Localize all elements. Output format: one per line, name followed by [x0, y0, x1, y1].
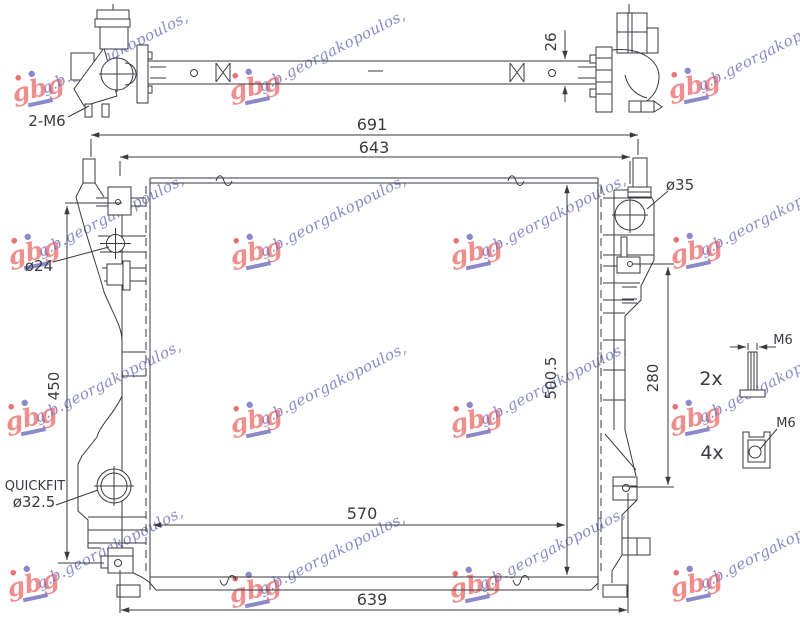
top-view-beam	[148, 61, 598, 84]
dim-bracket-span: 280	[630, 264, 674, 487]
upper-mount-bracket-right	[617, 257, 640, 273]
core-top-clip-right	[508, 176, 524, 186]
filler-pipe-front	[83, 159, 95, 183]
radiator-technical-drawing: gbg g.b.georgakopoulos, gbg g.b.georgako…	[0, 0, 800, 619]
top-view-filler-neck	[71, 4, 152, 117]
dim-upper-width-label: 643	[359, 138, 390, 157]
watermark-script-text: g.b.georgakopoulos,	[697, 503, 800, 593]
beam-clip-left	[216, 63, 230, 82]
dim-left-height-label: 450	[45, 372, 63, 401]
watermark-script-text: g.b.georgakopoulos,	[256, 6, 409, 96]
watermark-script-text: g.b.georgakopoulos,	[695, 5, 800, 95]
beam-clip-right	[510, 63, 524, 82]
dim-overall-width-label: 691	[357, 115, 388, 134]
dim-bracket-span-label: 280	[644, 364, 662, 393]
watermark: gbg g.b.georgakopoulos,	[447, 171, 630, 273]
inlet-diameter-label: ø24	[25, 257, 53, 275]
dim-core-width-label: 570	[347, 504, 378, 523]
watermark: gbg g.b.georgakopoulos,	[447, 339, 630, 441]
right-foot	[603, 585, 627, 597]
outlet-pipe	[633, 158, 647, 187]
drawing-canvas: gbg g.b.georgakopoulos, gbg g.b.georgako…	[0, 0, 800, 619]
watermark: gbg g.b.georgakopoulos,	[227, 339, 410, 441]
quickfit-size-label: ø32.5	[13, 493, 56, 511]
top-view-right-bracket	[590, 4, 662, 112]
watermark: gbg g.b.georgakopoulos,	[665, 5, 800, 107]
watermark-script-text: g.b.georgakopoulos,	[697, 170, 800, 260]
watermark-script-text: g.b.georgakopoulos,	[476, 504, 629, 594]
top-view: 26 2-M6	[28, 4, 662, 130]
quickfit-label: QUICKFIT	[5, 479, 65, 494]
beam-hole-right	[549, 70, 556, 77]
clip-qty-label: 4x	[700, 442, 723, 464]
m6-clip-nut-icon	[743, 429, 777, 468]
outlet-diameter-label: ø35	[666, 176, 694, 194]
lower-mount-bracket-right	[613, 477, 637, 500]
label-quickfit: QUICKFIT ø32.5	[5, 479, 98, 511]
watermark-layer: gbg g.b.georgakopoulos, gbg g.b.georgako…	[2, 5, 800, 611]
watermark: gbg g.b.georgakopoulos,	[667, 503, 800, 605]
beam-hole-left	[191, 70, 198, 77]
watermark: gbg g.b.georgakopoulos,	[226, 6, 409, 108]
dim-core-width: 570	[153, 504, 565, 525]
dim-lower-width-label: 639	[357, 590, 388, 609]
watermark-script-text: g.b.georgakopoulos,	[256, 509, 409, 599]
filler-cap	[97, 10, 129, 19]
watermark: gbg g.b.georgakopoulos,	[227, 171, 410, 273]
watermark-script-text: g.b.georgakopoulos,	[257, 171, 410, 261]
dim-core-height-label: 500.5	[542, 357, 560, 400]
note-2-m6: 2-M6	[28, 106, 89, 130]
clip-size-label: M6	[776, 416, 796, 431]
dim-upper-width: 643	[120, 138, 630, 184]
note-2-m6-label: 2-M6	[28, 112, 65, 130]
bolt-size-label: M6	[773, 333, 793, 348]
dim-thickness-label: 26	[542, 32, 560, 51]
core-top-clip-left	[216, 176, 232, 186]
dim-thickness: 26	[542, 30, 565, 102]
watermark-script-text: g.b.georgakopoulos,	[477, 171, 630, 261]
watermark-script-text: g.b.georgakopoulos,	[257, 339, 410, 429]
mount-pin-right	[102, 104, 109, 117]
watermark: gbg g.b.georgakopoulos,	[2, 337, 185, 439]
bolt-qty-label: 2x	[699, 368, 722, 390]
